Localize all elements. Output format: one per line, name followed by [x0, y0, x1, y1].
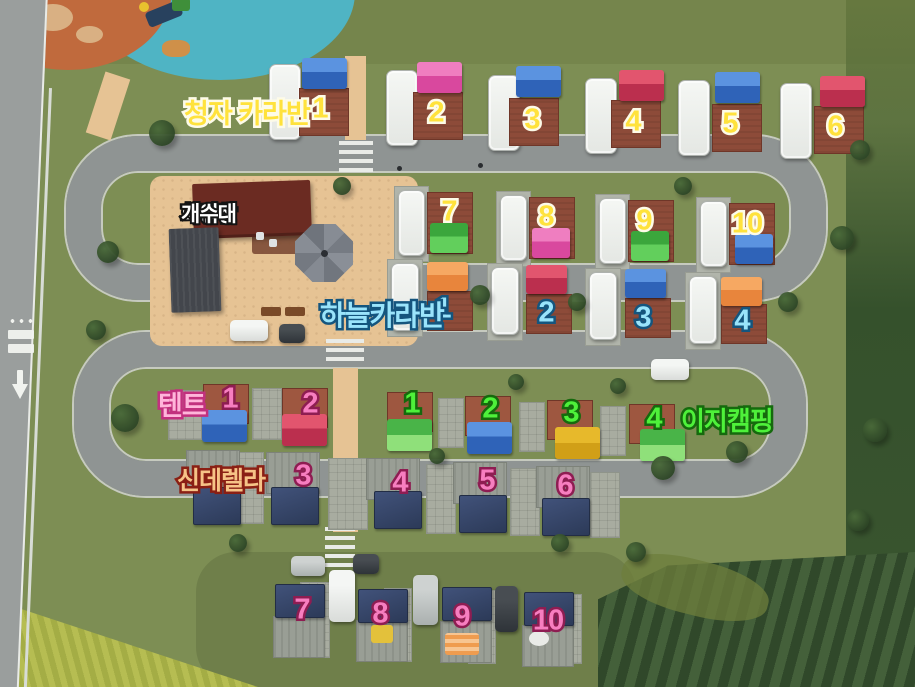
site-accent — [445, 633, 479, 655]
site-number: 4 — [392, 467, 407, 500]
tent-red — [526, 265, 567, 294]
tent-orange — [427, 262, 468, 291]
sites-layer: 123456789101234121234345678910 — [0, 0, 915, 687]
site-number: 8 — [538, 201, 553, 234]
site-number: 7 — [441, 196, 456, 229]
site-number: 7 — [294, 594, 309, 627]
caravan — [700, 201, 727, 267]
site-number: 9 — [454, 601, 469, 634]
haneul-caravan-label: 하늘카라반 — [320, 294, 444, 334]
tree — [830, 226, 854, 250]
car — [291, 556, 325, 576]
tent-lgreen — [387, 419, 432, 451]
site-number: 6 — [827, 111, 842, 144]
car — [329, 570, 355, 622]
tree — [847, 509, 869, 531]
tree — [86, 320, 106, 340]
tent-orange — [721, 277, 762, 306]
caravan — [491, 267, 519, 335]
car — [353, 554, 379, 574]
tree — [863, 418, 887, 442]
tree — [333, 177, 351, 195]
site-number: 3 — [295, 460, 310, 493]
site-number: 4 — [646, 403, 661, 436]
tent-yellow — [555, 427, 600, 459]
pedestrian — [397, 166, 402, 171]
tent-blue — [715, 72, 760, 103]
tree — [229, 534, 247, 552]
site-number: 5 — [479, 465, 494, 498]
caravan — [398, 190, 425, 256]
tent-blue — [516, 66, 561, 97]
cinderella-label: 신데렐라 — [177, 461, 265, 497]
site-number: 4 — [734, 305, 749, 338]
site-number: 1 — [312, 93, 327, 126]
car — [413, 575, 438, 625]
site-number: 2 — [538, 297, 553, 330]
bench — [261, 307, 281, 316]
tree — [674, 177, 692, 195]
caravan — [780, 83, 812, 159]
site-number: 2 — [302, 388, 317, 421]
tree — [568, 293, 586, 311]
tree — [111, 404, 139, 432]
tree — [850, 140, 870, 160]
caravan — [500, 195, 527, 261]
tree — [149, 120, 175, 146]
site-number: 5 — [722, 108, 737, 141]
tarp-tent — [459, 495, 507, 533]
parking-pad — [590, 472, 620, 538]
caravan — [599, 198, 626, 264]
easy-camping-label: 이지캠핑 — [681, 401, 773, 438]
tent-red — [820, 76, 865, 107]
tent-pink — [417, 62, 462, 93]
site-number: 1 — [222, 383, 237, 416]
tree — [97, 241, 119, 263]
caravan — [589, 272, 617, 340]
campground-aerial-map: 123456789101234121234345678910 청자 카라반 화장… — [0, 0, 915, 687]
car — [495, 586, 518, 632]
tarp-tent — [542, 498, 590, 536]
tree — [551, 534, 569, 552]
tent-blue — [467, 422, 512, 454]
tree — [726, 441, 748, 463]
parking-pad — [438, 398, 464, 448]
tent-label: 텐트 — [158, 384, 206, 423]
cheongja-caravan-label: 청자 카라반 — [184, 92, 310, 131]
caravan — [678, 80, 710, 156]
parking-pad — [252, 388, 282, 440]
site-number: 10 — [732, 208, 762, 241]
tree — [651, 456, 675, 480]
tree — [610, 378, 626, 394]
tent-red — [619, 70, 664, 101]
tree — [508, 374, 524, 390]
bench — [285, 307, 305, 316]
parking-pad — [328, 458, 368, 530]
site-number: 8 — [372, 598, 387, 631]
site-number: 10 — [533, 605, 563, 638]
site-number: 2 — [428, 97, 443, 130]
tree — [626, 542, 646, 562]
parking-pad — [519, 402, 545, 452]
site-number: 3 — [563, 397, 578, 430]
facilities-line-3: 개수대 — [181, 202, 236, 227]
tree — [470, 285, 490, 305]
car — [230, 320, 268, 341]
caravan — [689, 276, 717, 344]
site-number: 2 — [482, 393, 497, 426]
site-number: 3 — [635, 302, 650, 335]
car — [651, 359, 689, 380]
site-number: 4 — [625, 106, 640, 139]
tree — [429, 448, 445, 464]
parking-pad — [426, 464, 456, 534]
tarp-tent — [271, 487, 319, 525]
site-number: 3 — [524, 104, 539, 137]
parking-pad — [600, 406, 626, 456]
tent-blue — [302, 58, 347, 89]
pedestrian — [478, 163, 483, 168]
tent-blue — [625, 269, 666, 298]
car — [279, 324, 305, 343]
site-number: 1 — [404, 388, 419, 421]
tree — [778, 292, 798, 312]
site-number: 9 — [636, 205, 651, 238]
site-number: 6 — [557, 470, 572, 503]
